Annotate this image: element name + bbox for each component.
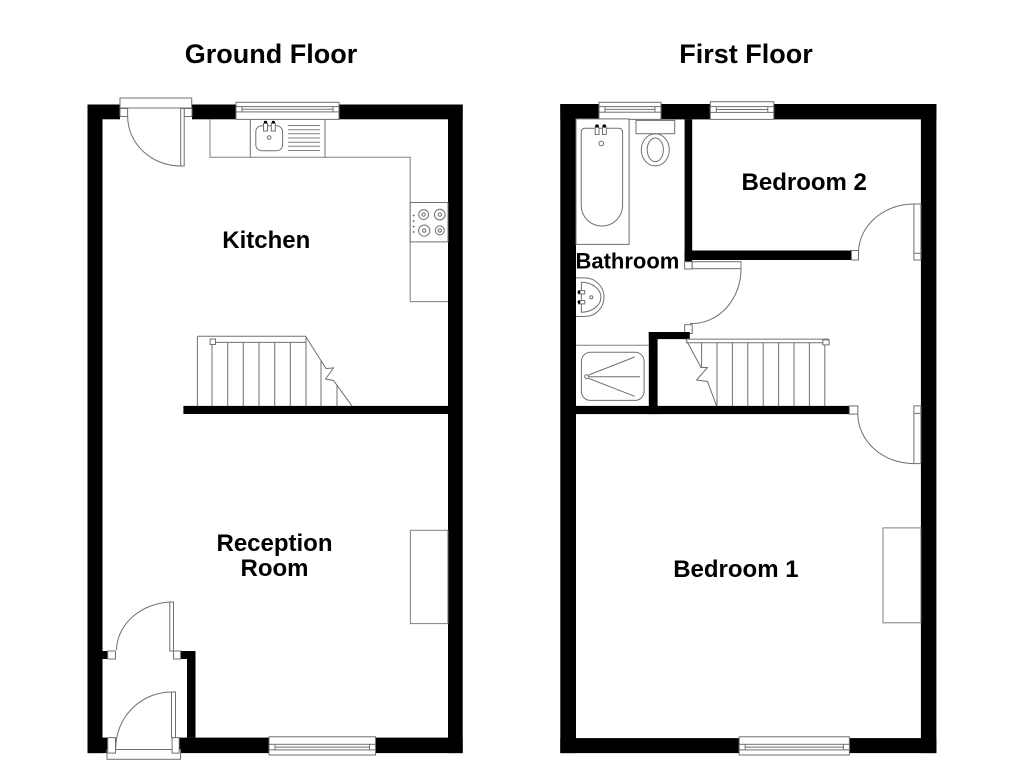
svg-text:First Floor: First Floor bbox=[679, 39, 813, 69]
svg-text:Bedroom 2: Bedroom 2 bbox=[742, 169, 867, 196]
svg-text:Bathroom: Bathroom bbox=[575, 249, 679, 274]
svg-text:Room: Room bbox=[241, 555, 309, 582]
svg-text:Reception: Reception bbox=[216, 530, 332, 557]
svg-text:Ground Floor: Ground Floor bbox=[185, 39, 358, 69]
svg-text:Bedroom 1: Bedroom 1 bbox=[673, 556, 798, 583]
svg-text:Kitchen: Kitchen bbox=[222, 227, 310, 254]
